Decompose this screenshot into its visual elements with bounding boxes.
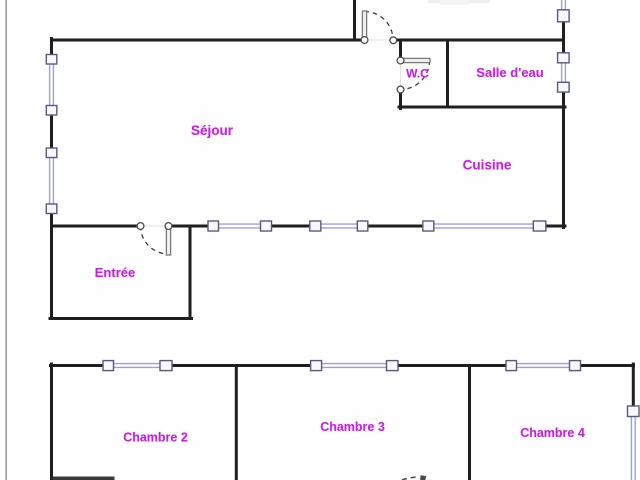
svg-text:Chambre 2: Chambre 2 [123, 431, 188, 445]
svg-text:Salle d'eau: Salle d'eau [476, 65, 543, 80]
svg-text:W.C: W.C [406, 67, 429, 81]
svg-text:Entrée: Entrée [95, 265, 135, 280]
svg-text:Séjour: Séjour [191, 123, 234, 138]
svg-text:Chambre 4: Chambre 4 [520, 426, 585, 440]
svg-text:Cuisine: Cuisine [463, 158, 512, 173]
svg-text:Chambre 3: Chambre 3 [320, 420, 385, 434]
